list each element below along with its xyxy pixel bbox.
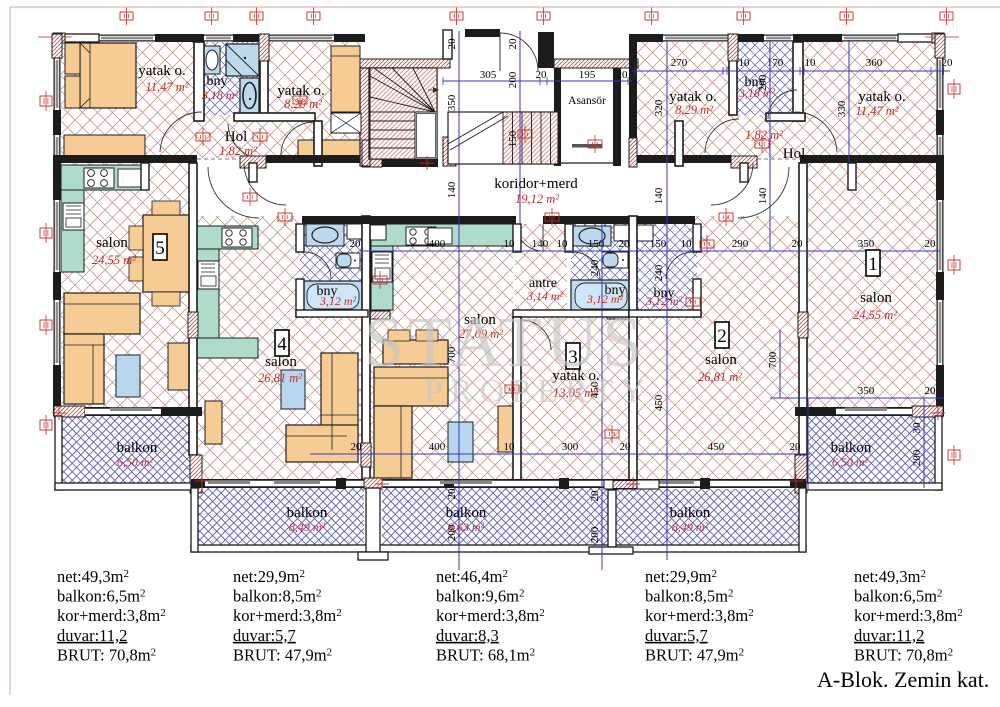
svg-text:400: 400 xyxy=(429,238,446,250)
svg-text:balkon:6,5m2: balkon:6,5m2 xyxy=(57,587,145,606)
svg-text:duvar:5,7: duvar:5,7 xyxy=(645,626,708,645)
svg-text:salon: salon xyxy=(705,352,737,368)
svg-text:A-Blok. Zemin kat.: A-Blok. Zemin kat. xyxy=(817,667,989,692)
svg-text:3,14 m²: 3,14 m² xyxy=(526,289,564,303)
svg-text:2: 2 xyxy=(717,326,727,347)
svg-text:BRUT: 70,8m2: BRUT: 70,8m2 xyxy=(57,645,156,664)
svg-text:net:29,9m2: net:29,9m2 xyxy=(233,567,305,586)
svg-text:240: 240 xyxy=(653,264,665,281)
svg-text:8,49 m²: 8,49 m² xyxy=(672,520,709,534)
svg-text:balkon:9,6m2: balkon:9,6m2 xyxy=(436,587,524,606)
svg-text:150: 150 xyxy=(507,130,519,147)
svg-text:8,29 m²: 8,29 m² xyxy=(284,97,322,111)
svg-text:24,55 m²: 24,55 m² xyxy=(92,253,136,267)
svg-text:1,82 m²: 1,82 m² xyxy=(219,144,257,158)
svg-text:6,50 m²: 6,50 m² xyxy=(117,455,154,469)
svg-text:yatak o.: yatak o. xyxy=(138,63,185,79)
svg-text:170: 170 xyxy=(767,57,784,69)
svg-text:20: 20 xyxy=(589,490,601,502)
svg-text:duvar:11,2: duvar:11,2 xyxy=(854,626,924,645)
svg-text:balkon: balkon xyxy=(287,505,328,521)
svg-text:20: 20 xyxy=(446,38,458,50)
svg-text:10: 10 xyxy=(504,238,516,250)
svg-text:kor+merd:3,8m2: kor+merd:3,8m2 xyxy=(233,606,342,625)
svg-text:balkon: balkon xyxy=(670,505,711,521)
svg-text:kor+merd:3,8m2: kor+merd:3,8m2 xyxy=(57,606,166,625)
svg-text:30: 30 xyxy=(911,422,923,434)
svg-text:STATUS: STATUS xyxy=(364,302,646,382)
svg-text:240: 240 xyxy=(589,259,601,276)
svg-text:140: 140 xyxy=(446,181,458,198)
svg-text:8,29 m²: 8,29 m² xyxy=(675,103,713,117)
svg-text:duvar:8,3: duvar:8,3 xyxy=(436,626,499,645)
svg-text:20: 20 xyxy=(536,69,548,81)
svg-text:450: 450 xyxy=(653,394,665,411)
svg-text:10: 10 xyxy=(557,238,569,250)
svg-text:balkon:6,5m2: balkon:6,5m2 xyxy=(854,587,942,606)
svg-text:4: 4 xyxy=(277,334,287,355)
svg-text:140: 140 xyxy=(757,187,769,204)
svg-text:BRUT: 47,9m2: BRUT: 47,9m2 xyxy=(645,645,744,664)
svg-text:3,18 m²: 3,18 m² xyxy=(738,86,776,100)
svg-text:net:29,9m2: net:29,9m2 xyxy=(645,567,717,586)
svg-text:kor+merd:3,8m2: kor+merd:3,8m2 xyxy=(645,606,754,625)
svg-text:3,18 m²: 3,18 m² xyxy=(201,88,239,102)
svg-text:20: 20 xyxy=(619,238,631,250)
svg-text:290: 290 xyxy=(732,238,749,250)
svg-text:koridor+merd: koridor+merd xyxy=(494,176,578,192)
svg-text:1: 1 xyxy=(868,254,878,275)
svg-text:net:46,4m2: net:46,4m2 xyxy=(436,567,508,586)
svg-text:20: 20 xyxy=(446,488,458,500)
svg-text:balkon: balkon xyxy=(446,505,487,521)
svg-text:350: 350 xyxy=(858,385,875,397)
svg-text:5: 5 xyxy=(155,238,165,259)
svg-text:balkon:8,5m2: balkon:8,5m2 xyxy=(233,587,321,606)
svg-text:20: 20 xyxy=(925,385,937,397)
svg-text:BRUT: 68,1m2: BRUT: 68,1m2 xyxy=(436,645,535,664)
svg-text:24,55 m²: 24,55 m² xyxy=(853,308,897,322)
svg-text:20: 20 xyxy=(925,238,937,250)
svg-text:140: 140 xyxy=(532,238,549,250)
svg-text:9,63 m²: 9,63 m² xyxy=(448,520,485,534)
svg-text:10: 10 xyxy=(739,57,751,69)
svg-text:net:49,3m2: net:49,3m2 xyxy=(57,567,129,586)
svg-text:Asansör: Asansör xyxy=(568,95,606,107)
svg-text:PROPERTY: PROPERTY xyxy=(424,373,652,410)
svg-text:270: 270 xyxy=(671,57,688,69)
svg-text:19,12 m²: 19,12 m² xyxy=(515,192,559,206)
svg-text:balkon:8,5m2: balkon:8,5m2 xyxy=(645,587,733,606)
svg-text:305: 305 xyxy=(480,69,497,81)
svg-text:1,82 m²: 1,82 m² xyxy=(745,128,783,142)
svg-text:10: 10 xyxy=(681,238,693,250)
svg-text:Hol: Hol xyxy=(783,146,806,162)
svg-text:BRUT: 70,8m2: BRUT: 70,8m2 xyxy=(854,645,953,664)
svg-text:20: 20 xyxy=(620,441,632,453)
svg-text:20: 20 xyxy=(617,69,629,81)
svg-text:duvar:5,7: duvar:5,7 xyxy=(233,626,296,645)
svg-text:150: 150 xyxy=(650,238,667,250)
svg-text:11,47 m²: 11,47 m² xyxy=(145,80,188,94)
svg-text:3,12 m²: 3,12 m² xyxy=(319,294,357,308)
svg-text:8,49 m²: 8,49 m² xyxy=(289,520,326,534)
svg-text:20: 20 xyxy=(350,238,362,250)
svg-text:BRUT: 47,9m2: BRUT: 47,9m2 xyxy=(233,645,332,664)
svg-text:20: 20 xyxy=(507,38,519,50)
svg-text:350: 350 xyxy=(446,94,458,111)
svg-text:20: 20 xyxy=(790,441,802,453)
svg-text:26,81 m²: 26,81 m² xyxy=(698,370,742,384)
svg-text:320: 320 xyxy=(653,99,665,116)
svg-text:20: 20 xyxy=(792,238,804,250)
svg-text:kor+merd:3,8m2: kor+merd:3,8m2 xyxy=(854,606,963,625)
svg-text:300: 300 xyxy=(562,441,579,453)
svg-text:balkon: balkon xyxy=(117,440,158,456)
svg-text:20: 20 xyxy=(942,57,954,69)
svg-text:700: 700 xyxy=(767,351,779,368)
svg-text:200: 200 xyxy=(911,449,923,466)
svg-text:195: 195 xyxy=(579,69,596,81)
svg-text:400: 400 xyxy=(429,441,446,453)
svg-text:6,50 m²: 6,50 m² xyxy=(832,455,869,469)
svg-text:11,47 m²: 11,47 m² xyxy=(855,104,898,118)
svg-text:26,81 m²: 26,81 m² xyxy=(258,371,302,385)
svg-text:450: 450 xyxy=(708,441,725,453)
svg-text:3,12 m²: 3,12 m² xyxy=(645,294,683,308)
svg-text:Hol: Hol xyxy=(225,129,248,145)
svg-text:balkon: balkon xyxy=(831,440,872,456)
svg-text:kor+merd:3,8m2: kor+merd:3,8m2 xyxy=(436,606,545,625)
svg-text:200: 200 xyxy=(507,71,519,88)
svg-text:200: 200 xyxy=(589,526,601,543)
svg-text:net:49,3m2: net:49,3m2 xyxy=(854,567,926,586)
svg-text:yatak o.: yatak o. xyxy=(858,89,905,105)
svg-text:140: 140 xyxy=(653,187,665,204)
svg-text:20: 20 xyxy=(351,441,363,453)
svg-text:duvar:11,2: duvar:11,2 xyxy=(57,626,127,645)
svg-text:bny: bny xyxy=(207,74,228,89)
svg-text:salon: salon xyxy=(96,235,128,251)
svg-text:350: 350 xyxy=(858,238,875,250)
svg-text:360: 360 xyxy=(866,57,883,69)
svg-text:10: 10 xyxy=(805,57,817,69)
svg-text:10: 10 xyxy=(504,441,516,453)
svg-text:salon: salon xyxy=(860,290,892,306)
svg-text:330: 330 xyxy=(836,100,848,117)
